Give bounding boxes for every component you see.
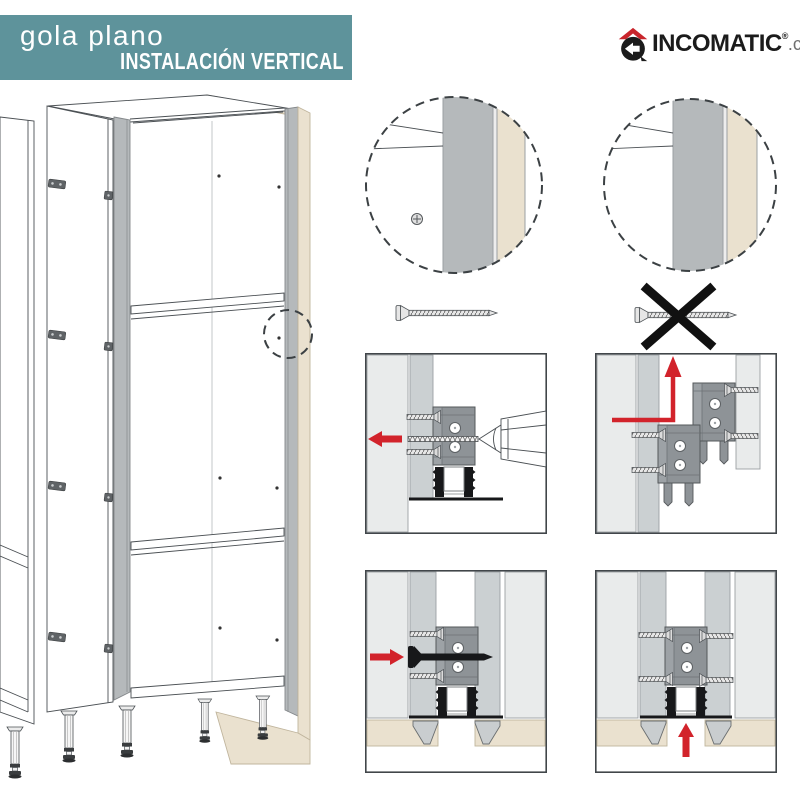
step-panel-hook-up <box>595 353 777 534</box>
step-panel-screw-fix <box>365 570 547 773</box>
gola-vertical-profiles <box>114 107 298 716</box>
brand-domain: .com <box>788 35 800 53</box>
header-band: gola plano INSTALACIÓN VERTICAL <box>0 15 352 80</box>
cabinet-interior <box>131 121 284 698</box>
detail-circle-screw-icon <box>364 95 544 275</box>
step-panel-drill <box>365 353 547 534</box>
detail-circle-no-screw-icon <box>602 97 780 275</box>
neighbour-cabinet <box>0 117 34 779</box>
step-panel-insert-up <box>595 570 777 773</box>
screw-icon <box>390 300 510 330</box>
screw-head-icon <box>412 214 423 225</box>
crossed-out-screw-icon <box>615 280 765 355</box>
brand-logo: INCOMATIC® .com <box>614 24 800 64</box>
page-subtitle: INSTALACIÓN VERTICAL <box>120 48 344 75</box>
page: gola plano INSTALACIÓN VERTICAL INCOMATI… <box>0 0 800 800</box>
brand-name: INCOMATIC® <box>652 32 788 56</box>
incomatic-house-logo-icon <box>614 25 652 63</box>
tall-cabinet-gola-illustration <box>0 88 360 800</box>
left-door-panel <box>47 106 113 712</box>
